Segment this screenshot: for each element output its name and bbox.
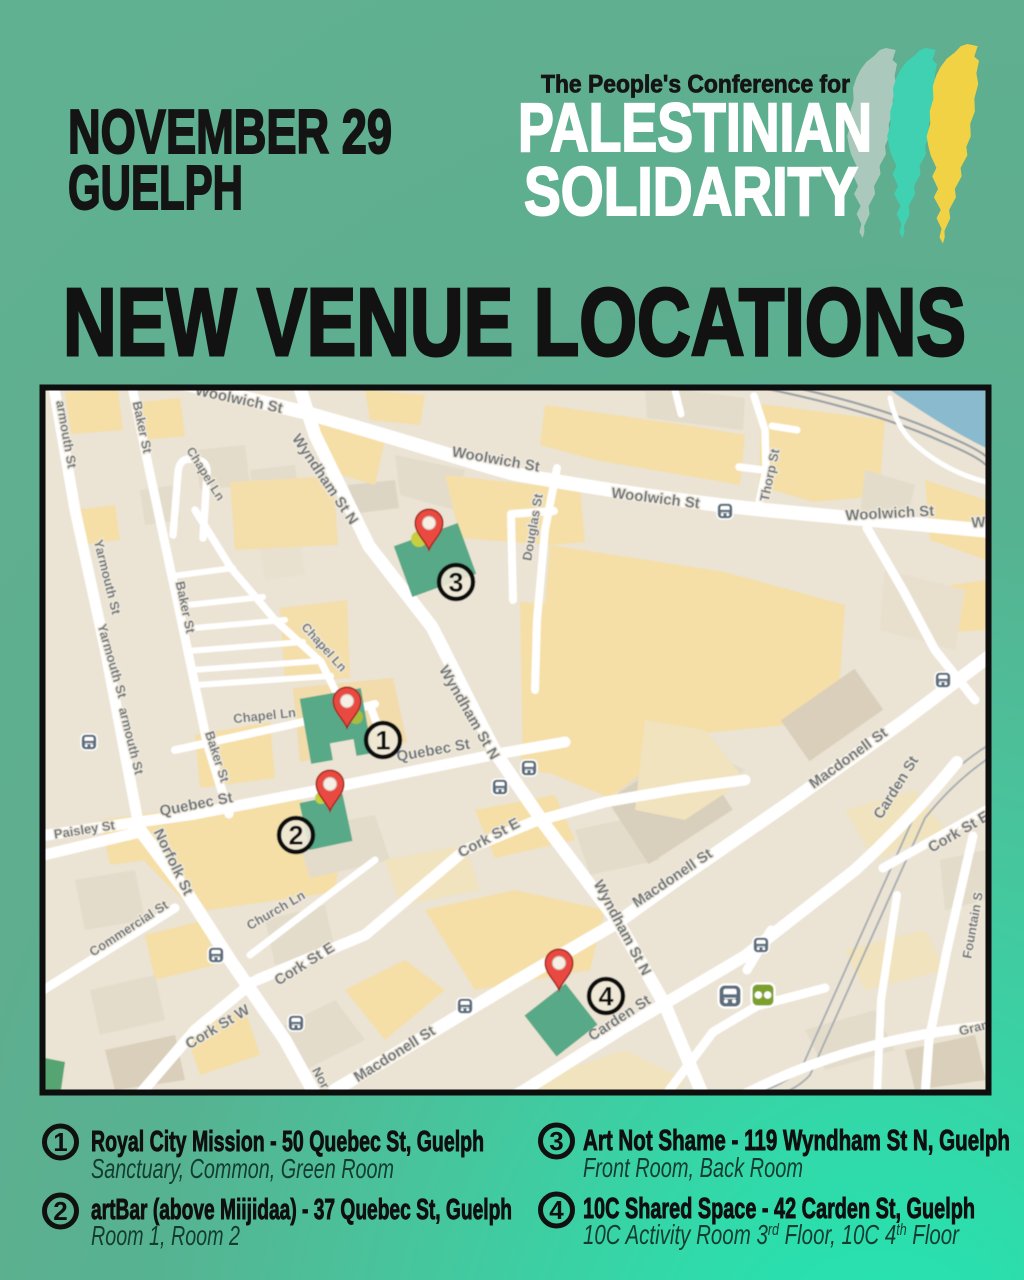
svg-text:2: 2 — [53, 1196, 67, 1226]
svg-text:2: 2 — [288, 821, 303, 851]
svg-text:1: 1 — [375, 726, 390, 756]
svg-text:Front Room, Back Room: Front Room, Back Room — [583, 1152, 803, 1183]
svg-text:Sanctuary, Common, Green Room: Sanctuary, Common, Green Room — [91, 1153, 394, 1184]
svg-text:Room 1, Room 2: Room 1, Room 2 — [91, 1220, 240, 1251]
svg-text:1: 1 — [53, 1127, 67, 1157]
svg-text:NEW VENUE LOCATIONS: NEW VENUE LOCATIONS — [63, 269, 966, 376]
svg-text:4: 4 — [598, 982, 613, 1012]
svg-text:3: 3 — [549, 1126, 563, 1156]
svg-text:GUELPH: GUELPH — [68, 154, 243, 223]
svg-text:3: 3 — [448, 568, 463, 598]
svg-text:4: 4 — [549, 1195, 564, 1225]
svg-text:SOLIDARITY: SOLIDARITY — [524, 153, 858, 230]
